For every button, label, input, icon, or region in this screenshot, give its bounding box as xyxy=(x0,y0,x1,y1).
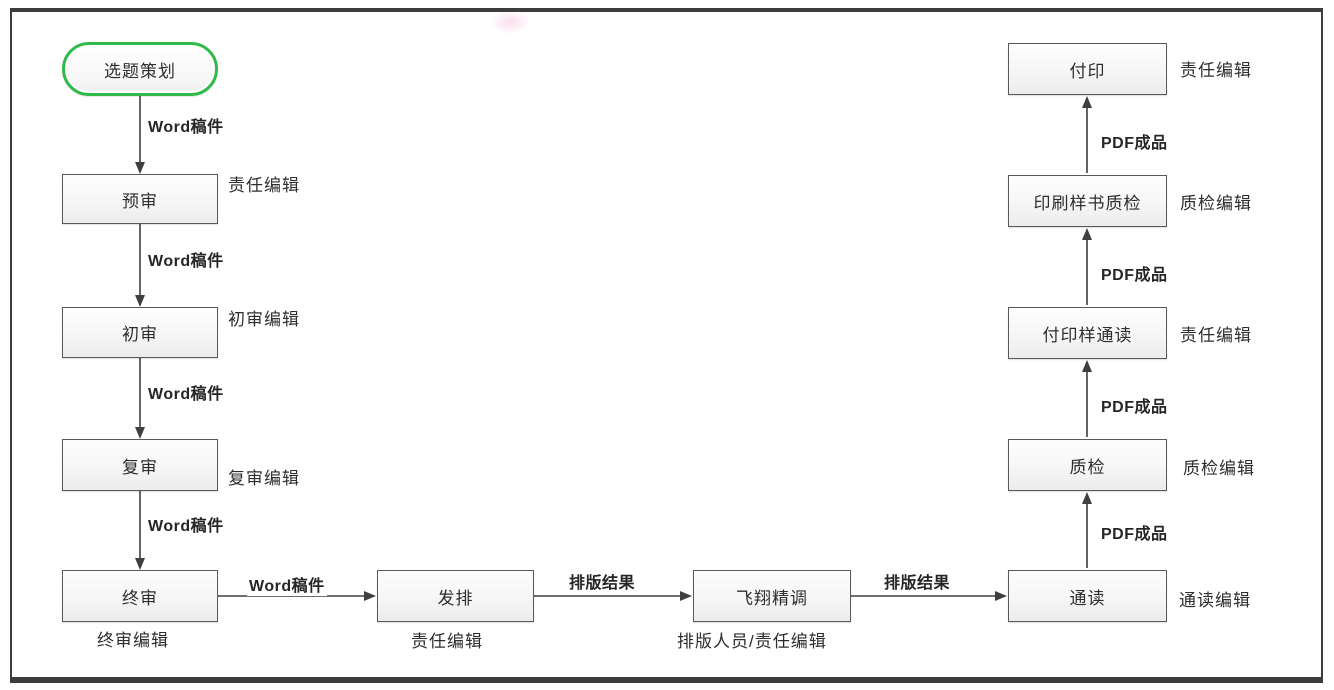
node-zhijian: 质检 xyxy=(1008,439,1167,491)
node-yinshua-zhijian: 印刷样书质检 xyxy=(1008,175,1167,227)
node-feixiang-jingtiao: 飞翔精调 xyxy=(693,570,851,622)
node-chushen: 初审 xyxy=(62,307,218,358)
node-zhongshen-label: 终审 xyxy=(122,584,158,609)
role-label-fuyinyang: 责任编辑 xyxy=(1180,321,1252,346)
edge-label-paiban-1: 排版结果 xyxy=(567,569,637,593)
edge-label-pdf-3: PDF成品 xyxy=(1099,261,1170,285)
role-label-yinshua: 质检编辑 xyxy=(1180,189,1252,214)
node-fushen-label: 复审 xyxy=(122,453,158,478)
node-zhongshen: 终审 xyxy=(62,570,218,622)
pink-smudge-artifact xyxy=(490,10,530,34)
edge-label-paiban-2: 排版结果 xyxy=(882,569,952,593)
node-start-label: 选题策划 xyxy=(104,57,176,82)
node-fuyin-label: 付印 xyxy=(1070,57,1106,82)
edge-label-pdf-4: PDF成品 xyxy=(1099,129,1170,153)
role-label-yushen: 责任编辑 xyxy=(228,171,300,196)
node-fapai: 发排 xyxy=(377,570,534,622)
role-label-tongdu: 通读编辑 xyxy=(1179,586,1251,611)
node-yushen-label: 预审 xyxy=(122,187,158,212)
flowchart-canvas: 选题策划 预审 初审 复审 终审 发排 飞翔精调 通读 质检 付印样通读 印刷样… xyxy=(0,0,1334,690)
node-tongdu-label: 通读 xyxy=(1070,584,1106,609)
role-label-zhijian: 质检编辑 xyxy=(1183,454,1255,479)
edge-label-pdf-2: PDF成品 xyxy=(1099,393,1170,417)
node-zhijian-label: 质检 xyxy=(1070,453,1106,478)
node-start: 选题策划 xyxy=(62,42,218,96)
node-fushen: 复审 xyxy=(62,439,218,491)
node-fuyinyang-tongdu: 付印样通读 xyxy=(1008,307,1167,359)
role-label-feixiang: 排版人员/责任编辑 xyxy=(677,627,827,652)
edge-label-word-2: Word稿件 xyxy=(146,247,226,271)
edge-label-pdf-1: PDF成品 xyxy=(1099,520,1170,544)
edge-label-word-1: Word稿件 xyxy=(146,113,226,137)
edge-label-word-4: Word稿件 xyxy=(146,512,226,536)
node-fuyinyang-label: 付印样通读 xyxy=(1043,321,1133,346)
node-fuyin: 付印 xyxy=(1008,43,1167,95)
role-label-chushen: 初审编辑 xyxy=(228,305,300,330)
role-label-fuyin: 责任编辑 xyxy=(1180,56,1252,81)
node-yinshua-label: 印刷样书质检 xyxy=(1034,189,1142,214)
edge-label-word-3: Word稿件 xyxy=(146,380,226,404)
edge-label-word-5: Word稿件 xyxy=(247,572,327,596)
role-label-fapai: 责任编辑 xyxy=(411,627,483,652)
node-fapai-label: 发排 xyxy=(438,584,474,609)
role-label-zhongshen: 终审编辑 xyxy=(97,626,169,651)
node-feixiang-label: 飞翔精调 xyxy=(736,584,808,609)
node-tongdu: 通读 xyxy=(1008,570,1167,622)
node-yushen: 预审 xyxy=(62,174,218,224)
node-chushen-label: 初审 xyxy=(122,320,158,345)
role-label-fushen: 复审编辑 xyxy=(228,464,300,489)
